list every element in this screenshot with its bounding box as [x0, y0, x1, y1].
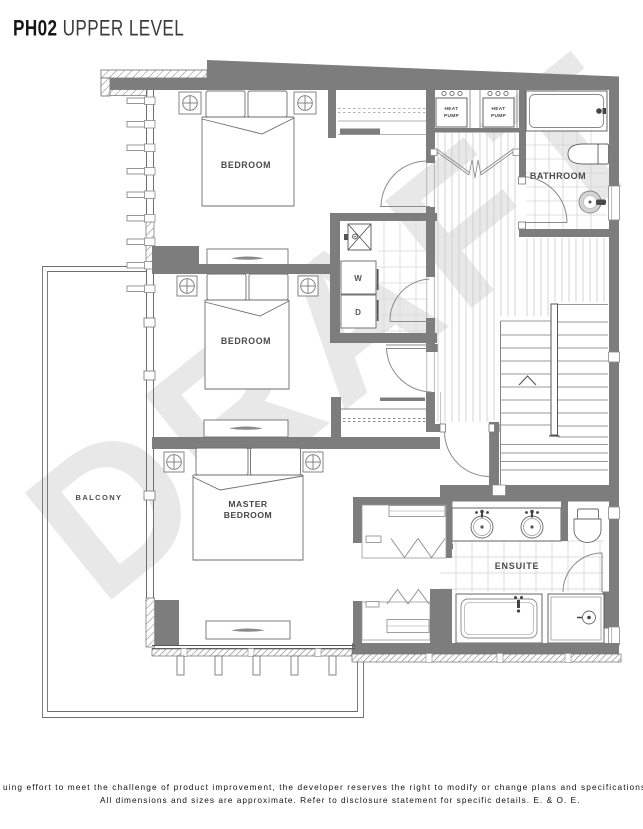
svg-text:uing effort to meet the challe: uing effort to meet the challenge of pro… [3, 782, 643, 792]
svg-text:All dimensions and sizes are a: All dimensions and sizes are approximate… [100, 795, 580, 805]
svg-text:BALCONY: BALCONY [76, 493, 123, 502]
svg-text:HEAT: HEAT [492, 106, 506, 112]
svg-text:PUMP: PUMP [444, 113, 460, 119]
svg-text:ENSUITE: ENSUITE [495, 561, 540, 571]
svg-text:MASTER: MASTER [228, 499, 268, 509]
svg-text:W: W [354, 274, 362, 283]
svg-text:BEDROOM: BEDROOM [221, 336, 271, 346]
svg-text:BEDROOM: BEDROOM [221, 160, 271, 170]
svg-text:BEDROOM: BEDROOM [224, 510, 272, 520]
svg-text:PH02 UPPER LEVEL: PH02 UPPER LEVEL [13, 17, 184, 42]
svg-text:HEAT: HEAT [445, 106, 459, 112]
svg-text:PUMP: PUMP [491, 113, 507, 119]
svg-text:D: D [355, 308, 361, 317]
